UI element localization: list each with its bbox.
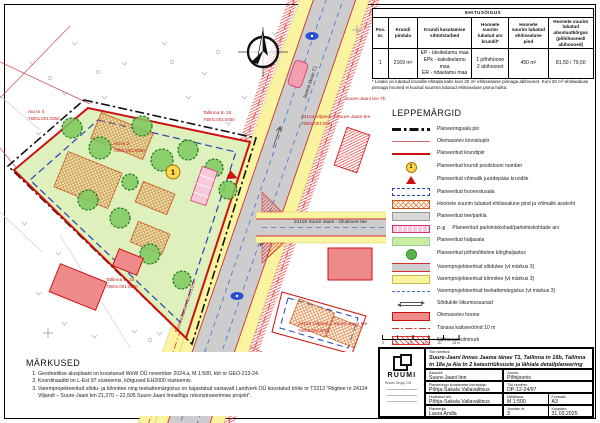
map-label-text: Jaama tänav T1: [303, 66, 320, 100]
map-label: 24116 Suure-Jaani - Olustvere tee: [294, 220, 367, 226]
legend-item: Varemprojekteeritud teekattemärgistus (v…: [392, 287, 594, 296]
scalebar-label: 0: [382, 341, 384, 345]
legend-label: Planeeritud tee/parkla: [437, 214, 487, 220]
legend-item: 1Planeeritud krundi positsiooni number: [392, 162, 594, 173]
ehitusoigus-header-row: Pos. nr.Krundi pindalaKrundi kasutamise …: [373, 17, 594, 49]
legend-label: Planeeringuala piir: [437, 127, 479, 133]
table-cell: 1: [373, 49, 389, 78]
legend-label: Olemasolev kinnistupiir: [437, 139, 489, 145]
legend-item: Planeeritud haljasala: [392, 237, 594, 246]
legend-item: Planeeritud tee/parkla: [392, 212, 594, 221]
scale-bar: 0510152025 m: [382, 335, 460, 345]
date-value: 31.03.2025: [552, 412, 590, 417]
green-area-swatch: [392, 237, 430, 246]
work-title: Suure-Jaani linnas Jaama tänav T1, Talli…: [429, 355, 589, 368]
legend-title: LEPPEMÄRGID: [392, 108, 594, 118]
legend-items: Planeeringuala piirOlemasolev kinnistupi…: [392, 125, 594, 345]
planner-value: Laura Andla: [429, 412, 499, 417]
planner-cell: Planeerija: Laura Andla: [425, 405, 503, 417]
map-label: Tallinna tn 1676001:001:0450: [203, 111, 235, 122]
building-area-swatch: [392, 188, 430, 196]
legend-item: Varemprojekteeritud sõidutee (vt märkus …: [392, 263, 594, 272]
number-date-cell: Joonise nr: 3 Kuupäev: 31.03.2025: [503, 405, 593, 417]
title-block: RUUMI Ruumi Grupp OÜ Töö nimetus: Suure-…: [378, 347, 594, 418]
legend-label: Varemprojekteeritud sõidutee (vt märkus …: [437, 265, 534, 271]
table-footnote: * Lisaks on lubatud krundile ehitada kak…: [372, 79, 594, 91]
map-label-text: Tallinna tn 18: [106, 278, 138, 284]
ehitusoigus-body: 12169 m²EP - üksikelamu maa EPk - kaksik…: [373, 49, 594, 78]
table-title: EHITUSÕIGUS: [373, 9, 594, 18]
arrow-left-icon: [400, 305, 422, 306]
building-footprint-swatch: [392, 200, 430, 209]
legend-label: Olemasolev hoone: [437, 313, 479, 319]
note-item: Koordinaadid on L-Est 97 süsteemis, kõrg…: [38, 378, 373, 385]
map-label: Suure-Jaani tee 7b: [345, 97, 386, 103]
map-label: 24124 Viljandi – Suure-Jaani tee76001:00…: [301, 115, 393, 126]
table-header-cell: Hoonete suurim lubatud arv krundil*: [472, 17, 509, 49]
planning-boundary-swatch: [392, 128, 430, 130]
legend-label: Tänava kaitsevöönd 10 m: [437, 326, 495, 332]
building-rights-panel: EHITUSÕIGUS Pos. nr.Krundi pindalaKrundi…: [372, 8, 594, 79]
map-label-text: Suure-Jaani tee 7b: [345, 97, 386, 103]
drawing-number-label: Joonise nr:: [507, 407, 545, 411]
existing-building-swatch: [392, 312, 430, 321]
scalebar-label: 25 m: [452, 341, 460, 345]
tree-swatch: [392, 249, 430, 260]
position-number-swatch: 1: [392, 162, 430, 173]
prev-marking-swatch: [392, 291, 430, 292]
parking-stripes: [393, 226, 429, 232]
scale-format-cell: Mõõtkava: M 1:500 Formaat: A3: [503, 393, 593, 405]
map-label: Aia tn 476001:001:0250: [28, 110, 60, 121]
drawing-number-value: 3: [507, 412, 545, 417]
legend-label: Planeeritud võimalik juurdepääs krundile: [437, 177, 528, 183]
map-label-cadastre: 76001:001:0050: [113, 148, 145, 153]
legend-label: Planeeritud krundi positsiooni number: [437, 164, 522, 170]
legend-item: Varemprojekteeritud kõnnitee (vt märkus …: [392, 275, 594, 284]
legend-item: P-8Planeeritud parkimiskohad/parkimiskoh…: [392, 225, 594, 234]
prev-road-swatch: [392, 263, 430, 272]
legend-label: Planeeritud krundipiir: [437, 151, 485, 157]
legend-label: Planeeritud hoonestusala: [437, 190, 495, 196]
scalebar-label: 5: [395, 341, 397, 345]
notes-title: MÄRKUSED: [26, 358, 372, 368]
map-label-cadastre: 76001:001:0001: [298, 328, 390, 333]
scale-bar-ticks: [382, 335, 460, 340]
map-label-text: Tänava kaitsevöönd 10 m: [175, 280, 198, 334]
work-number-cell: Töö number: DP-12-24/97: [503, 381, 593, 393]
legend-item: Sõidukite liikumissuunad: [392, 300, 594, 309]
building-rights-table: EHITUSÕIGUS Pos. nr.Krundi pindalaKrundi…: [372, 8, 594, 79]
map-label-cadastre: 76001:001:0001: [301, 121, 393, 126]
access-swatch: [392, 176, 430, 184]
map-label-cadastre: 76001:001:0450: [203, 117, 235, 122]
table-header-cell: Hoonete suurim lubatud absoluutkõrgus (p…: [548, 17, 593, 49]
planned-plot-boundary-swatch: [392, 153, 430, 155]
existing-boundary-swatch: [392, 141, 430, 142]
parking-spots-swatch: [392, 225, 430, 233]
legend-item: Tänava kaitsevöönd 10 m: [392, 324, 594, 333]
legend-label: Planeeritud põhimõtteline kõrghaljastus: [437, 251, 526, 257]
table-header-cell: Krundi pindala: [388, 17, 417, 49]
note-item: Geodeetilise alusplaani on koostanud WeW…: [38, 371, 373, 378]
map-label-text: Tallinna tn 16: [203, 111, 235, 117]
road-parking-swatch: [392, 212, 430, 221]
company-logo: RUUMI Ruumi Grupp OÜ: [379, 348, 425, 417]
note-item: Varemprojekteeritud sõidu- ja kõnnitee n…: [38, 386, 373, 401]
legend-label: Varemprojekteeritud teekattemärgistus (v…: [437, 289, 555, 295]
legend-label: Hoonete suurim lubatud ehitisealune pind…: [437, 202, 575, 208]
legend-item: Planeeringuala piir: [392, 125, 594, 134]
legend-tag: P-8: [437, 226, 445, 232]
scalebar-label: 20: [438, 341, 442, 345]
work-title-cell: Töö nimetus: Suure-Jaani linnas Jaama tä…: [425, 348, 593, 369]
table-header-cell: Pos. nr.: [373, 17, 389, 49]
map-label-cadastre: 76001:001:0250: [28, 116, 60, 121]
table-cell: 2169 m²: [388, 49, 417, 78]
map-label: Aia tn 276001:001:0050: [113, 142, 145, 153]
legend-item: Olemasolev kinnistupiir: [392, 137, 594, 146]
traffic-directions-swatch: [392, 302, 430, 306]
legend-label: Varemprojekteeritud kõnnitee (vt märkus …: [437, 277, 534, 283]
tree-icon: [406, 249, 417, 260]
street-protection-swatch: [392, 328, 430, 330]
drawing-cell: Joonis: Põhijoonis: [503, 369, 593, 381]
table-header-cell: Hoonete suurim lubatud ehitisealune pind: [509, 17, 548, 49]
scale-bar-labels: 0510152025 m: [382, 341, 460, 345]
legend-item: Hoonete suurim lubatud ehitisealune pind…: [392, 200, 594, 209]
legend-item: Planeeritud põhimõtteline kõrghaljastus: [392, 249, 594, 260]
legend-item: Planeeritud krundipiir: [392, 149, 594, 158]
notes-panel: MÄRKUSED Geodeetilise alusplaani on koos…: [10, 352, 372, 416]
table-header-cell: Krundi kasutamise sihtotstarbed: [418, 17, 472, 49]
table-row: 12169 m²EP - üksikelamu maa EPk - kaksik…: [373, 49, 594, 78]
access-triangle-icon: [406, 176, 416, 184]
legend-label: Planeeritud haljasala: [437, 238, 484, 244]
table-cell: 81,50 / 79,50: [548, 49, 593, 78]
map-label: Tallinna tn 1876001:001:0290: [106, 278, 138, 289]
legend-label: Sõidukite liikumissuunad: [437, 301, 493, 307]
legend-label: Planeeritud parkimiskohad/parkimiskohtad…: [452, 226, 559, 232]
position-number-symbol: 1: [406, 162, 417, 173]
legend-item: Planeeritud hoonestusala: [392, 188, 594, 197]
prev-sidewalk-swatch: [392, 275, 430, 284]
legend-item: Olemasolev hoone: [392, 312, 594, 321]
legend-panel: LEPPEMÄRGID Planeeringuala piirOlemasole…: [386, 103, 594, 343]
map-label-cadastre: 76001:001:0290: [106, 284, 138, 289]
company-name: Ruumi Grupp OÜ: [385, 381, 419, 385]
map-label-text: 24116 Suure-Jaani - Olustvere tee: [294, 220, 367, 226]
location-cell: Asukoht: Suure-Jaani linn: [425, 369, 503, 381]
map-label: 24124 Viljandi – Suure-Jaani tee76001:00…: [298, 322, 390, 333]
logo-text: RUUMI: [388, 372, 417, 379]
map-label: Tänava kaitsevöönd 10 m: [175, 280, 198, 334]
logo-icon: [392, 354, 412, 370]
organizer-cell: Planeeringu koostamise korraldaja: Põhja…: [425, 381, 503, 393]
notes-list: Geodeetilise alusplaani on koostanud WeW…: [26, 371, 373, 400]
table-cell: EP - üksikelamu maa EPk - kaksikelamu ma…: [418, 49, 472, 78]
scalebar-label: 15: [423, 341, 427, 345]
scalebar-label: 10: [408, 341, 412, 345]
interested-party-cell: Huvitatud isik: Põhja-Sakala Vallavalits…: [425, 393, 503, 405]
work-title-label: Töö nimetus:: [429, 350, 589, 354]
table-cell: 1 põhihoone 2 abihoonet: [472, 49, 509, 78]
arrow-right-icon: [400, 302, 422, 303]
legend-item: Planeeritud võimalik juurdepääs krundile: [392, 176, 594, 185]
table-cell: 450 m²: [509, 49, 548, 78]
map-label: Jaama tänav T1: [303, 66, 320, 100]
